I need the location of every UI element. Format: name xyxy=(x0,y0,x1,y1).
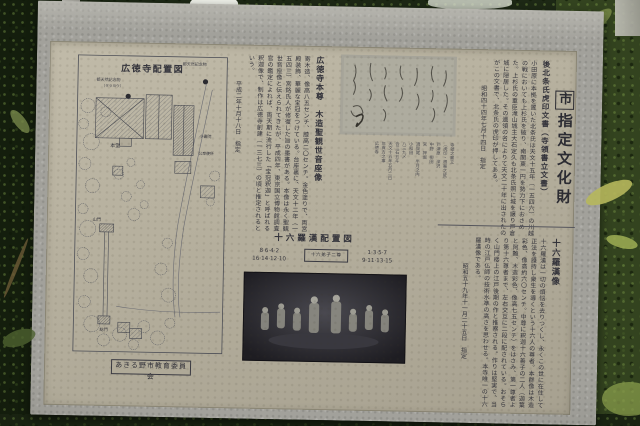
monument-dot xyxy=(203,79,208,84)
caption-column: 広徳寺 xyxy=(373,141,380,229)
map-buildings xyxy=(92,94,217,340)
outdoor-scene: 広徳寺配置図 都天然記念物 都天然記念物 （タラヨウ） xyxy=(0,0,640,426)
map-label-somon: 総門 xyxy=(99,326,108,333)
credit-box: あきる野市教育委員会 xyxy=(111,359,191,376)
caption-column: （虎印・根案之証） xyxy=(441,142,448,230)
section-rakan-body: 十六羅漢は一切の煩悩を去りつくし、永くこの世に在住して正法を護持し衆生を導くとい… xyxy=(468,237,546,410)
document-transcription: 寺領之書立 （虎印・根案之証） 戸津原 深沢 中野 柳田 宮 押堀 須賀尾 半月… xyxy=(332,140,456,230)
caption-column: 須賀尾 半月之内 xyxy=(414,142,421,230)
section-koin-date: 昭和四十四年七月十四日 指定 xyxy=(476,59,488,237)
section-koin-body: 小田原に本拠を置いた北条氏は天文十五年（一五四六）の川越の戦においても上杉氏を破… xyxy=(487,59,537,238)
caption-column: 小和田 xyxy=(407,142,414,230)
rakan-numbers-right-bottom: 9·11·13·15 xyxy=(346,257,408,267)
caption-column: 戸津原 深沢 xyxy=(435,142,442,230)
temple-layout-map: 広徳寺配置図 都天然記念物 都天然記念物 （タラヨウ） xyxy=(71,53,229,356)
map-label-monument-left-sub: （タラヨウ） xyxy=(102,83,124,88)
caption-column: 中野 柳田 xyxy=(428,142,435,230)
section-honzon: 広徳寺本尊 木造聖観世音座像 寄木造、像高八五センチ、膝高二〇センチ。金色塗りで… xyxy=(228,54,325,236)
caption-column: 年貢方之事 xyxy=(380,141,387,229)
sign-panel: 広徳寺配置図 都天然記念物 都天然記念物 （タラヨウ） xyxy=(43,41,577,415)
caption-column: 天文十五年五月二日 xyxy=(387,141,394,229)
section-koin: 後北条氏虎印文書（寺領書立文書） 小田原に本拠を置いた北条氏は天文十五年（一五四… xyxy=(455,59,551,239)
map-label-monument-right: 都天然記念物 xyxy=(183,60,207,66)
rakan-photo xyxy=(242,272,407,364)
caption-column: 八三九〆 xyxy=(400,142,407,230)
caption-column: 合三石五斗 xyxy=(393,141,400,229)
section-honzon-date: 平成二年十月十八日 指定 xyxy=(230,54,242,234)
concrete-post xyxy=(615,0,640,36)
section-rakan: 十六羅漢像 十六羅漢は一切の煩悩を去りつくし、永くこの世に在住して正法を護持し衆… xyxy=(424,236,561,411)
designation-title-rest: 指定文化財 xyxy=(554,113,572,208)
map-path xyxy=(103,232,109,316)
section-koin-heading: 後北条氏虎印文書（寺領書立文書） xyxy=(537,60,551,238)
rakan-numbers-left: 8·6·4·2 16·14·12·10 xyxy=(238,246,300,264)
rakan-numbers-right: 1·3·5·7 9·11·13·15 xyxy=(346,249,408,267)
caption-column: 宮 押堀 xyxy=(421,142,428,230)
rakan-numbers-left-bottom: 16·14·12·10 xyxy=(238,255,300,265)
sign-board-slab: 広徳寺配置図 都天然記念物 都天然記念物 （タラヨウ） xyxy=(30,1,604,426)
section-rakan-date: 昭和五十九年十一月二十五日 指定 xyxy=(457,237,469,409)
map-label-small-shoin: 小書院 xyxy=(199,133,211,139)
document-photo xyxy=(340,54,458,136)
map-label-sanmon: 山門 xyxy=(93,216,102,223)
map-label-monument-left: 都天然記念物 xyxy=(96,76,120,82)
rakan-diagram-heading: 十六羅漢配置図 xyxy=(244,231,384,246)
designation-title-mark: 市 xyxy=(555,91,574,110)
map-title: 広徳寺配置図 xyxy=(121,62,184,74)
map-label-main-hall: 本堂 xyxy=(110,142,120,149)
section-honzon-body: 寄木造、像高八五センチ、膝高二〇センチ。金色塗りで、両宮殿装飾、華麗な宝冠をつけ… xyxy=(242,55,311,236)
rakan-center-box: 十六弟子二尊 xyxy=(304,249,348,263)
section-rakan-heading: 十六羅漢像 xyxy=(547,238,562,410)
section-honzon-heading: 広徳寺本尊 木造聖観世音座像 xyxy=(311,56,325,236)
map-label-restroom: 公衆便所 xyxy=(198,151,213,156)
designation-title: 市指定文化財 xyxy=(551,91,575,243)
